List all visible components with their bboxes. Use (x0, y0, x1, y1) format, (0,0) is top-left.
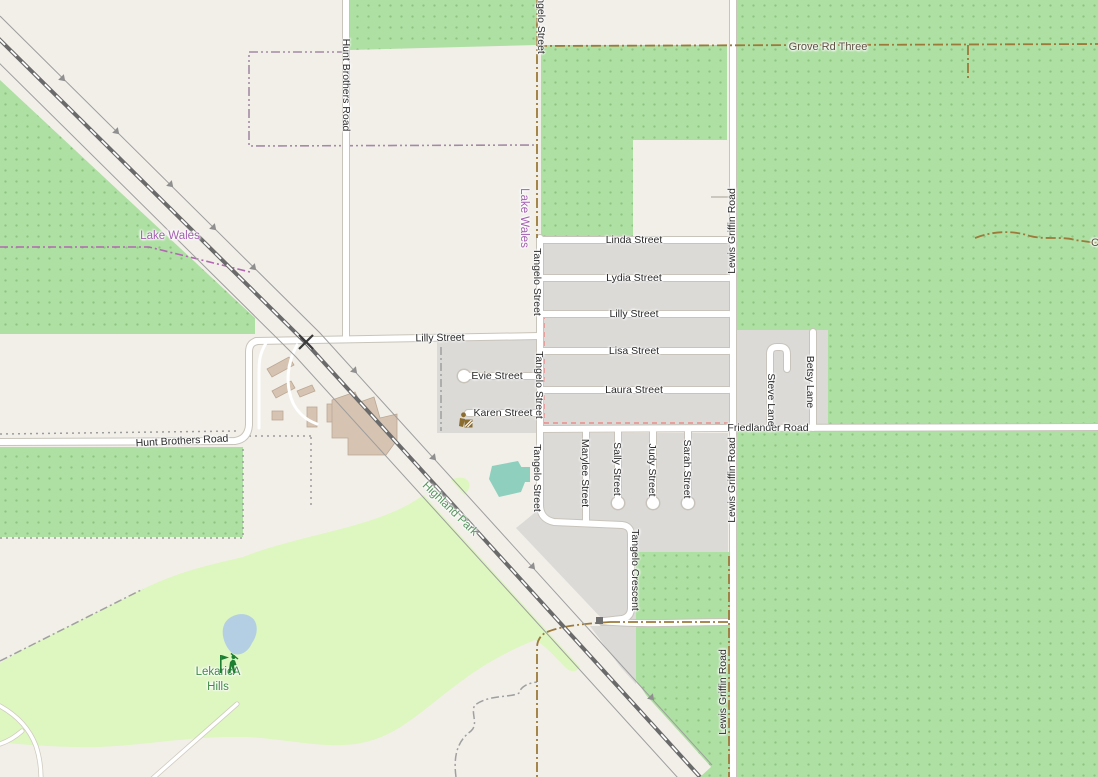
map-viewport[interactable]: Tangelo Street Hunt Brothers Road Grove … (0, 0, 1098, 777)
orchard-inset (636, 552, 729, 621)
map-canvas (0, 0, 1098, 777)
railway-crossing-square-icon (596, 617, 603, 624)
